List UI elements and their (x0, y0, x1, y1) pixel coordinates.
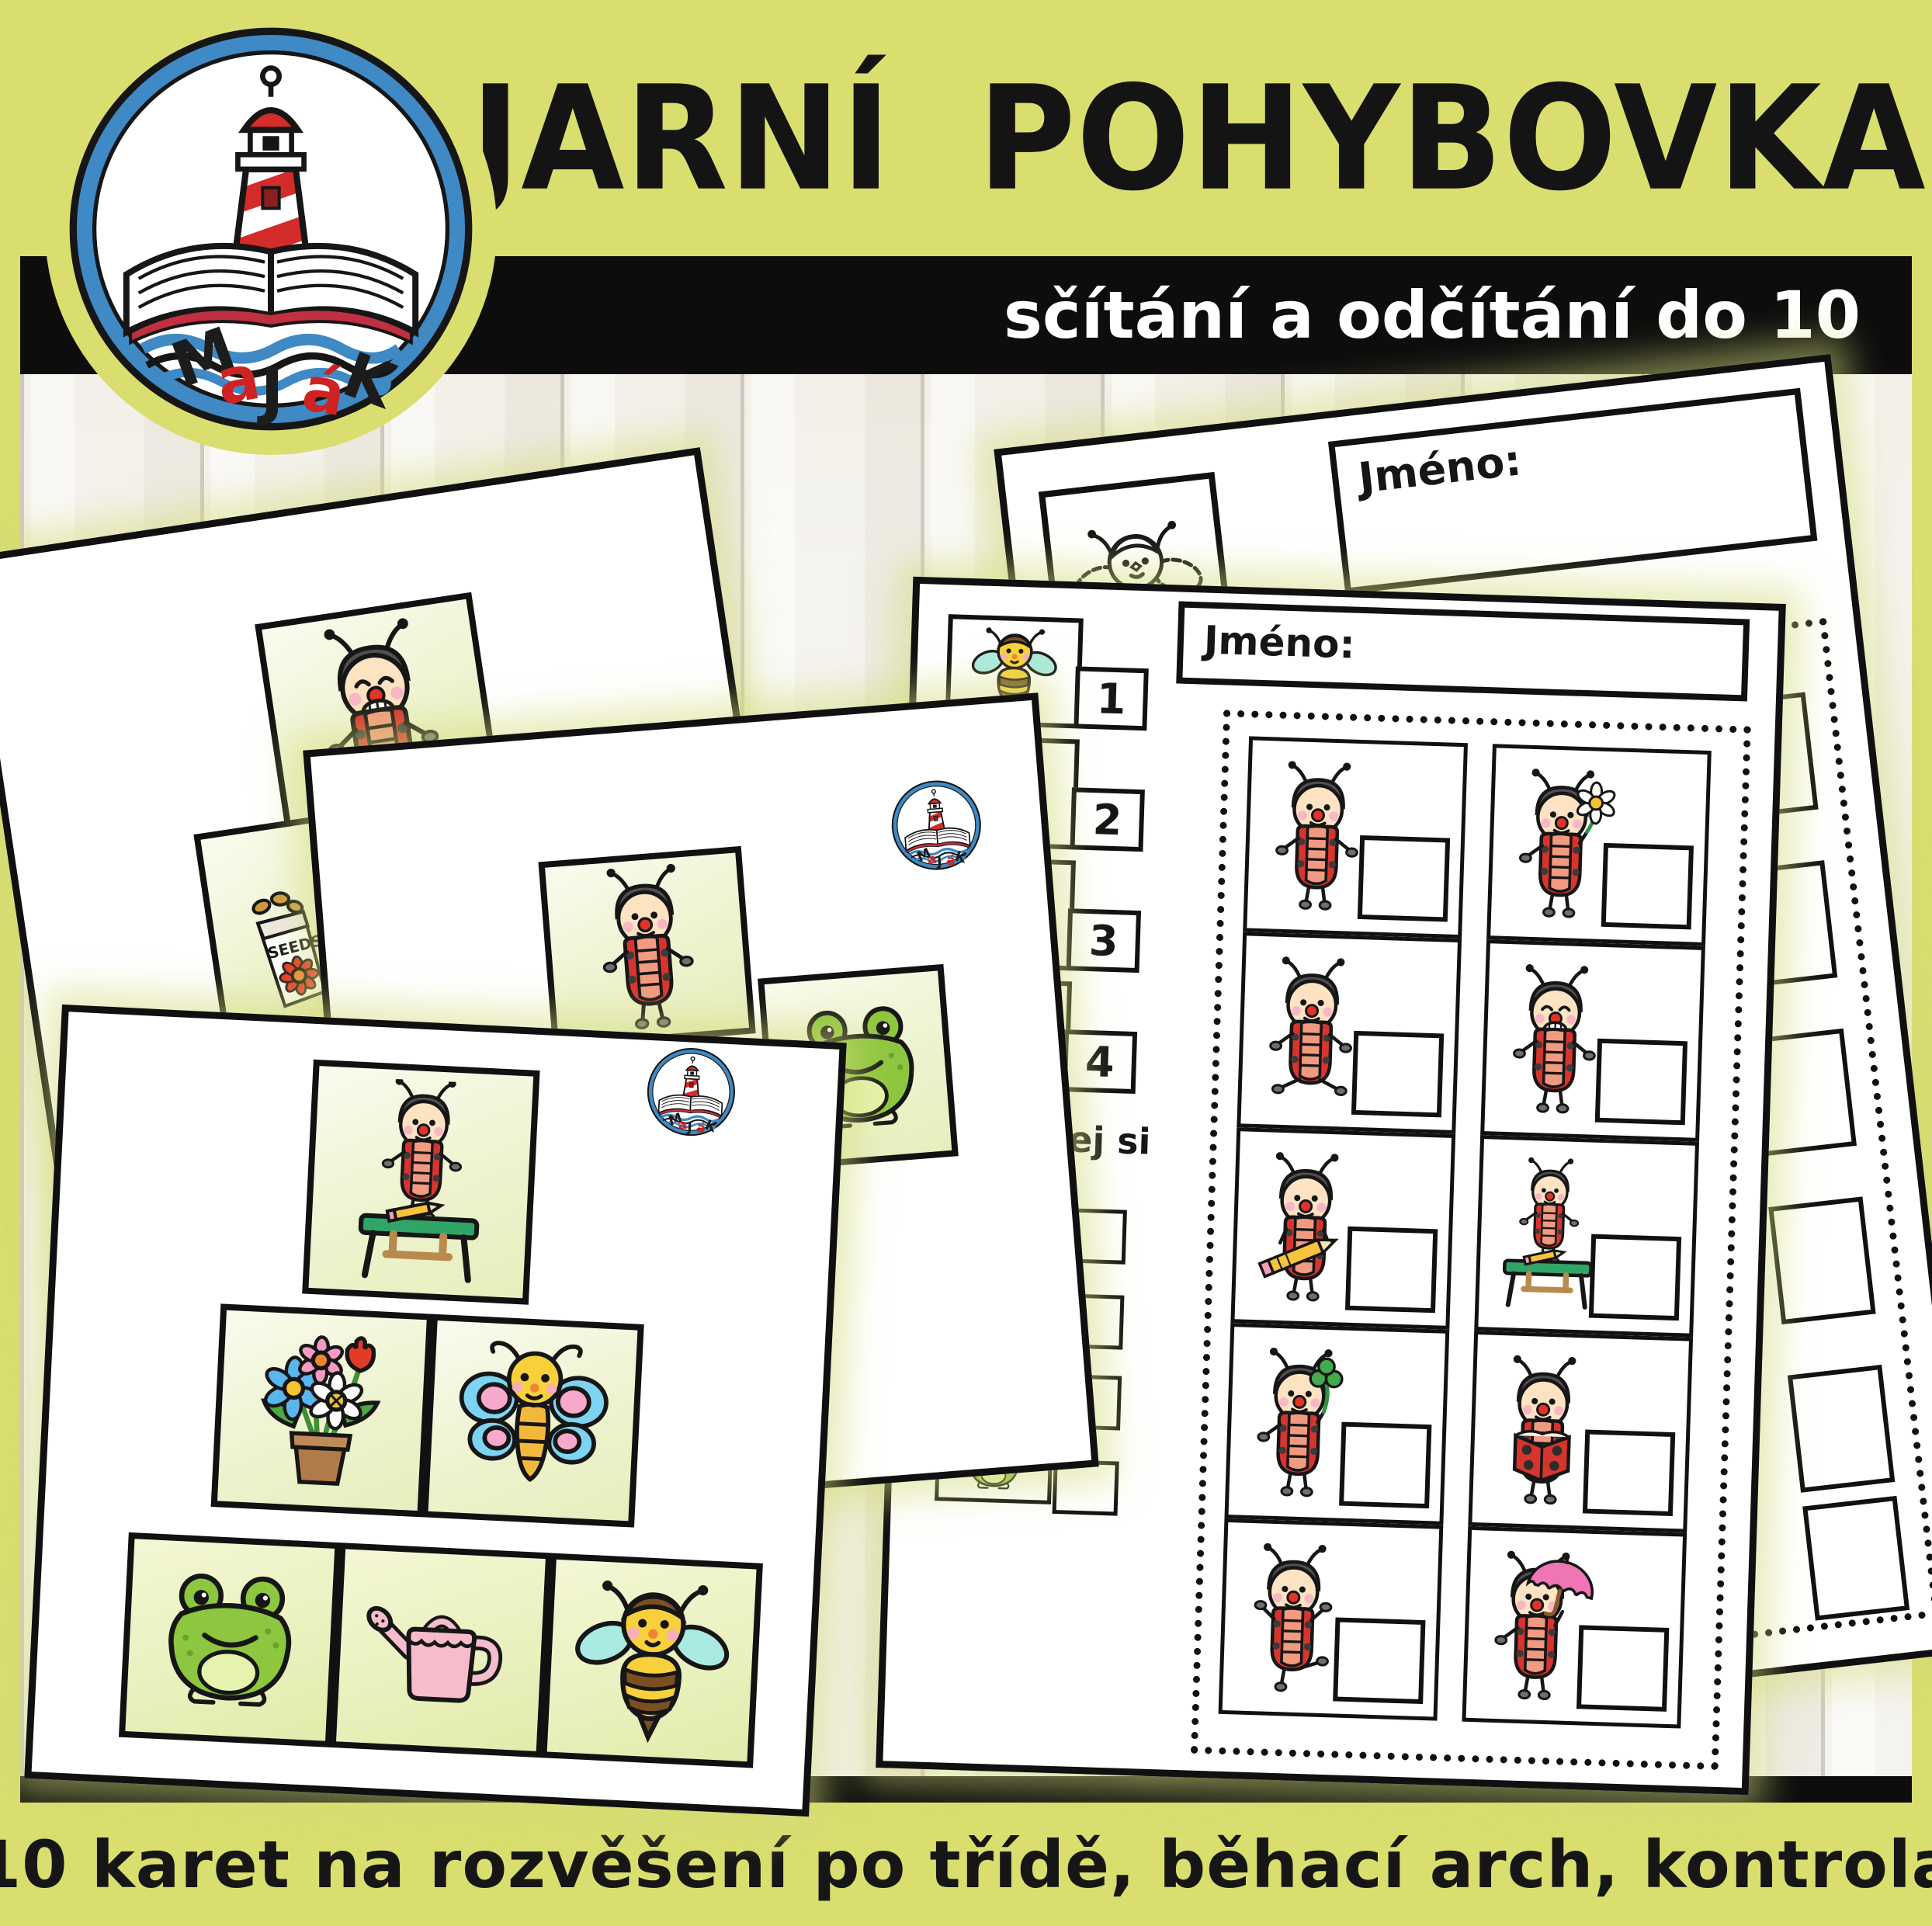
legend-number: 4 (1063, 1029, 1137, 1094)
page-subtitle: sčítání a odčítání do 10 (970, 256, 1894, 374)
ladybug-smiling-icon (568, 859, 725, 1036)
footer-band: 10 karet na rozvěšení po třídě, běhací a… (0, 1803, 1932, 1926)
answer-box (1358, 835, 1450, 922)
svg-text:J: J (686, 1120, 692, 1136)
flower-pot-icon (231, 1317, 412, 1504)
card-image-cell (330, 1543, 553, 1758)
grid-cell (1468, 1331, 1693, 1533)
lighthouse-book-logo-icon: MaJáK (64, 23, 477, 436)
grid-cell (1486, 744, 1712, 946)
task-card-front: MaJáK (24, 1005, 847, 1817)
svg-text:J: J (257, 356, 284, 428)
answer-box (1788, 1365, 1895, 1493)
answer-box (1589, 1234, 1681, 1321)
bee-icon (561, 1571, 741, 1751)
legend-number: 2 (1070, 787, 1144, 852)
answer-box (1339, 1422, 1431, 1509)
footer-text: 10 karet na rozvěšení po třídě, běhací a… (0, 1827, 1932, 1903)
page-title: JARNÍ POHYBOVKA (477, 11, 1920, 265)
majak-logo-small: MaJáK (644, 1045, 739, 1140)
answer-box (1351, 1031, 1444, 1118)
legend-number: 1 (1074, 666, 1148, 730)
answer-box (1333, 1617, 1425, 1704)
answer-box (1576, 1625, 1669, 1712)
butterfly-icon (442, 1327, 623, 1515)
legend-number: 3 (1067, 908, 1141, 973)
grid-cell (1237, 932, 1462, 1134)
answer-box (1802, 1496, 1909, 1621)
answer-box (1583, 1429, 1675, 1516)
grid-cell (1474, 1135, 1699, 1338)
grid-cell (1480, 939, 1705, 1142)
name-label: Jméno: (1356, 436, 1524, 502)
answer-box (1595, 1039, 1687, 1126)
card-image-cell (538, 846, 755, 1050)
frog-icon (140, 1550, 320, 1730)
card-image-cell (119, 1532, 342, 1747)
answer-box (1601, 843, 1694, 930)
grid-cell (1224, 1323, 1449, 1525)
card-image-cell (302, 1060, 539, 1305)
card-image-cell (211, 1303, 433, 1517)
card-image-cell (540, 1553, 763, 1768)
name-label: Jméno: (1203, 618, 1355, 668)
grid-cell (1230, 1127, 1455, 1330)
flyer-canvas: { "colors": { "accent_green": "#d9de6e",… (0, 0, 1932, 1926)
answer-box (1345, 1227, 1438, 1313)
grid-cell (1243, 736, 1468, 939)
grid-cell (1462, 1526, 1687, 1729)
majak-logo-small: MaJáK (887, 776, 986, 875)
ladybug-at-desk-icon (332, 1077, 510, 1288)
majak-logo: MaJáK (45, 3, 497, 455)
name-field: Jméno: (1176, 601, 1750, 701)
svg-text:a: a (677, 1117, 688, 1133)
card-image-cell (421, 1314, 643, 1528)
watering-can-icon (354, 1564, 528, 1737)
name-field: Jméno: (1328, 388, 1817, 595)
answer-box (1768, 1196, 1875, 1324)
grid-cell (1219, 1518, 1444, 1721)
